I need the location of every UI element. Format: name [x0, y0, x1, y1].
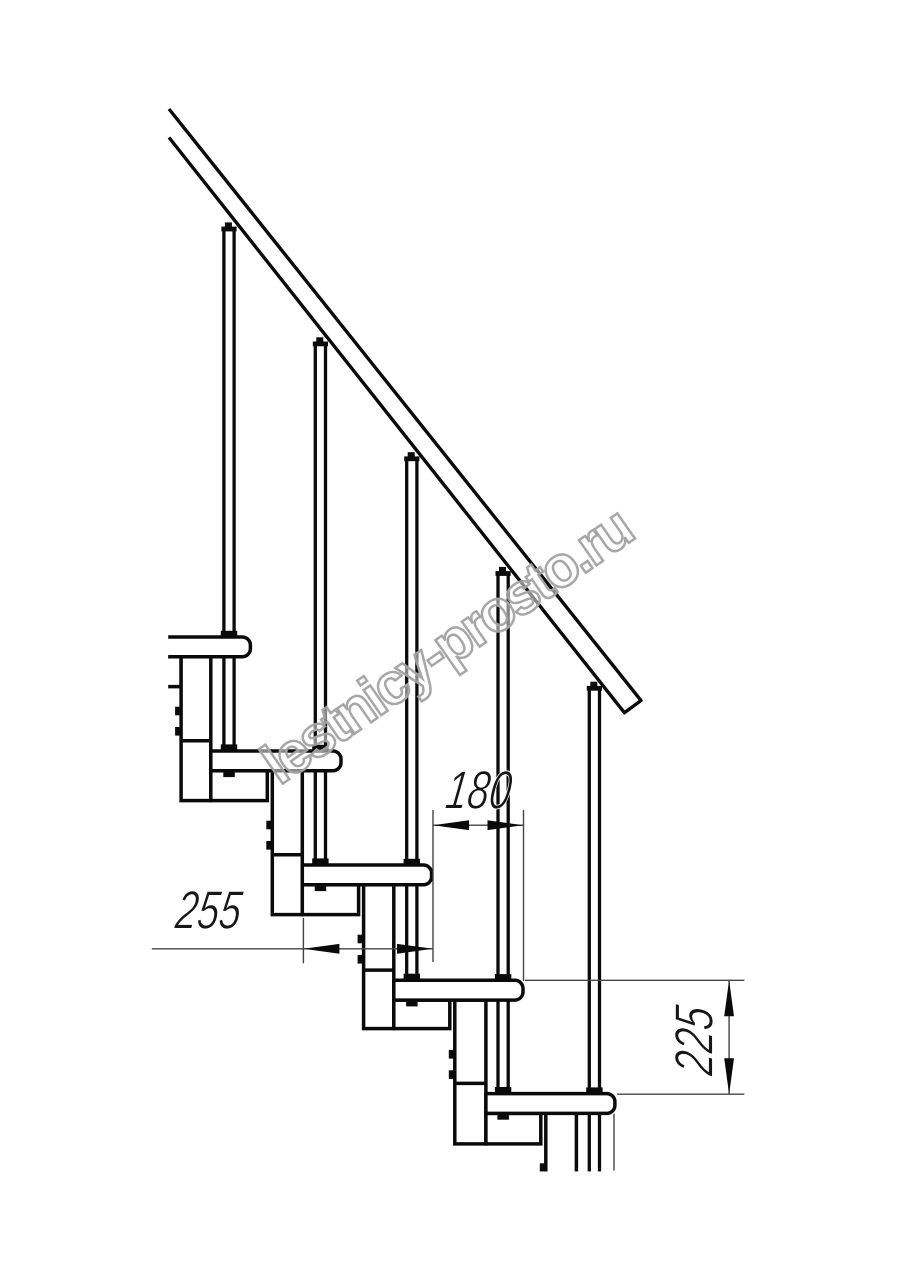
svg-text:225: 225	[665, 1002, 725, 1079]
svg-text:180: 180	[442, 760, 515, 820]
svg-text:255: 255	[171, 880, 246, 940]
